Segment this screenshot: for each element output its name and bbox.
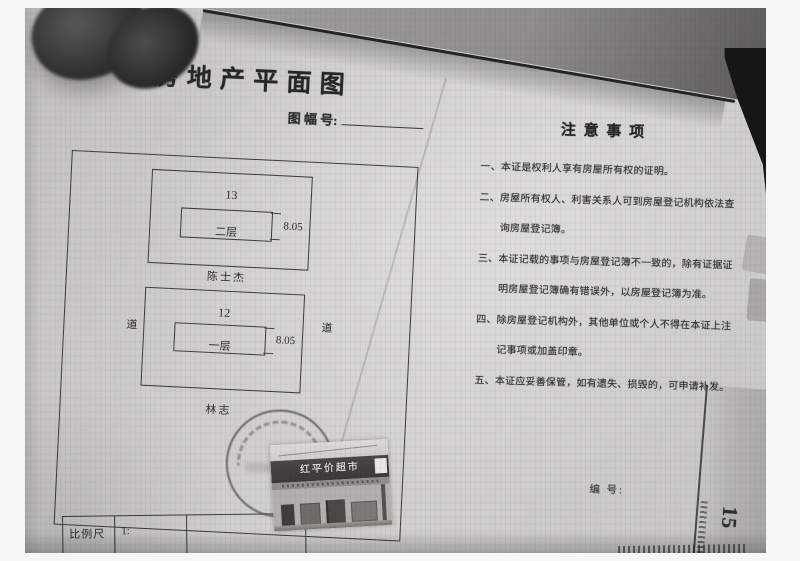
building-plan-lower: 12 一层 8.05 [140,287,305,394]
notice-line: 五、本证应妥善保管，如有遗失、损毁的，可申请补发。 [474,366,731,404]
sheet-number-text: 图 幅 号: [287,111,338,128]
building-outline-upper: 二层 [180,207,273,241]
plan-sheet-section: 房 地 产 平 面 图 图 幅 号: 13 二层 8.05 陈士杰 12 一层 … [51,48,486,553]
shop-window [351,501,378,522]
lot-number-upper: 13 [152,184,312,207]
document-photo: 15 房 地 产 平 面 图 图 幅 号: 13 二层 8.05 陈士杰 12 … [25,8,766,553]
page-number: 15 [716,505,743,530]
scale-value: 1: [115,515,188,553]
scale-label: 比例尺 [63,516,116,553]
building-outline-lower: 一层 [173,322,266,355]
sheet-number-blank-line [341,112,424,129]
plan-border: 13 二层 8.05 陈士杰 12 一层 8.05 林志 道 道 [54,150,419,542]
dimension-upper: 8.05 [283,220,303,233]
dimension-lower: 8.05 [276,334,296,347]
edge-print-marks [618,544,746,553]
notes-list: 一、本证是权利人享有房屋所有权的证明。二、房屋所有权人、利害关系人可到房屋登记机… [474,152,737,403]
shop-sign-lightbox [374,458,387,474]
shop-facade [272,484,392,532]
thumb-holding-page [25,8,205,123]
storefront-photo: 红平价超市 [270,439,393,531]
page-corner-tab [746,278,766,324]
road-label-right: 道 [321,319,333,336]
scale-table: 比例尺 1: [62,513,307,553]
antenna-line [278,445,378,457]
road-label-left: 道 [126,316,138,333]
shop-window [300,503,321,526]
building-plan-upper: 13 二层 8.05 [147,169,312,271]
page-corner-tab [741,234,766,277]
serial-number-label: 编 号: [589,481,624,497]
sheet-number-label: 图 幅 号: [287,108,424,134]
page-stack-edge: 15 [692,385,766,553]
lot-number-lower: 12 [145,302,304,325]
